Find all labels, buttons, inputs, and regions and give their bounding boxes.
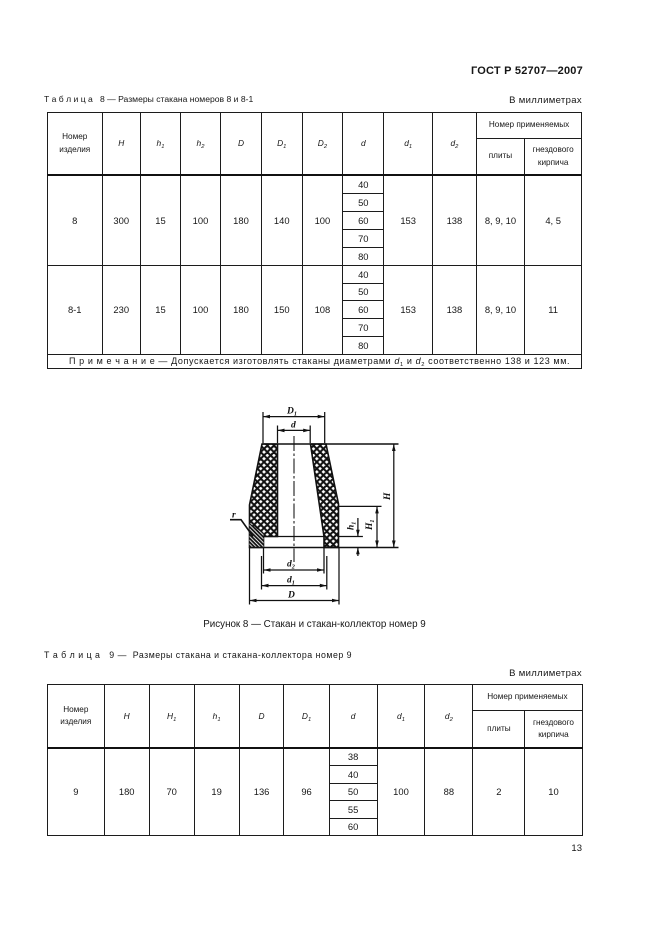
svg-text:h1: h1 bbox=[347, 522, 358, 530]
svg-text:H1: H1 bbox=[365, 520, 376, 531]
svg-text:d: d bbox=[291, 421, 296, 431]
svg-text:H: H bbox=[383, 492, 393, 501]
svg-text:D: D bbox=[287, 591, 295, 601]
svg-text:d1: d1 bbox=[287, 576, 295, 587]
svg-text:r: r bbox=[232, 511, 236, 521]
svg-text:D1: D1 bbox=[286, 407, 297, 418]
